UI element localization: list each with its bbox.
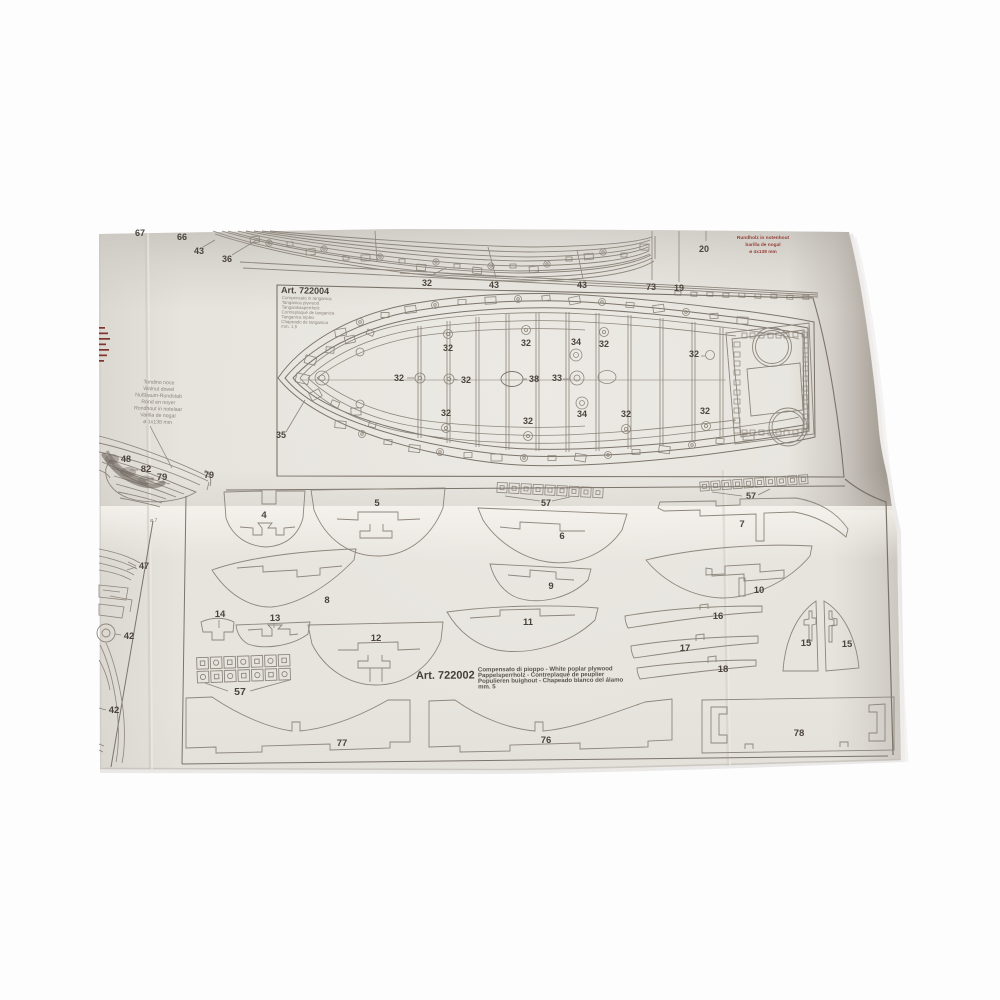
svg-text:32: 32 <box>521 338 531 348</box>
svg-text:mm. 5: mm. 5 <box>478 683 496 690</box>
svg-text:15: 15 <box>842 639 853 650</box>
svg-text:mm. 1,5: mm. 1,5 <box>281 324 298 329</box>
svg-text:32: 32 <box>443 343 453 353</box>
svg-text:16: 16 <box>713 611 724 622</box>
svg-text:42: 42 <box>109 705 120 716</box>
svg-text:Populieren buighout - Chapeado: Populieren buighout - Chapeado blanco de… <box>478 677 624 685</box>
svg-text:79: 79 <box>204 470 214 480</box>
svg-text:67: 67 <box>135 228 145 238</box>
svg-text:5: 5 <box>374 498 380 509</box>
svg-text:34: 34 <box>577 409 587 419</box>
svg-text:7: 7 <box>739 519 744 530</box>
svg-text:57: 57 <box>746 491 756 501</box>
svg-text:Rundholz in notenhout: Rundholz in notenhout <box>737 235 790 241</box>
svg-text:34: 34 <box>571 337 581 347</box>
svg-text:47: 47 <box>139 561 149 571</box>
svg-text:9: 9 <box>548 581 553 592</box>
svg-text:36: 36 <box>222 254 232 264</box>
svg-text:66: 66 <box>177 232 187 242</box>
svg-text:38: 38 <box>529 374 539 384</box>
svg-text:11: 11 <box>523 617 534 628</box>
svg-text:8: 8 <box>324 595 329 606</box>
svg-text:35: 35 <box>276 430 286 440</box>
svg-text:82: 82 <box>141 464 152 475</box>
svg-text:ø 7: ø 7 <box>150 518 157 524</box>
svg-text:19: 19 <box>674 283 684 293</box>
svg-text:17: 17 <box>680 643 691 654</box>
svg-text:ø 4x138 mm: ø 4x138 mm <box>749 249 776 255</box>
svg-text:15: 15 <box>801 638 812 649</box>
svg-text:33: 33 <box>552 373 562 383</box>
svg-text:32: 32 <box>700 406 710 416</box>
svg-text:14: 14 <box>215 609 226 620</box>
svg-text:32: 32 <box>461 375 471 385</box>
svg-text:76: 76 <box>541 735 552 746</box>
svg-text:77: 77 <box>337 738 348 749</box>
svg-text:32: 32 <box>689 349 699 359</box>
svg-text:32: 32 <box>523 416 533 426</box>
svg-text:57: 57 <box>541 498 551 508</box>
svg-text:6: 6 <box>559 531 564 542</box>
svg-text:20: 20 <box>699 244 709 254</box>
svg-text:48: 48 <box>121 454 131 464</box>
svg-text:32: 32 <box>422 278 432 288</box>
svg-text:42: 42 <box>124 631 135 642</box>
svg-text:73: 73 <box>646 282 656 292</box>
svg-text:12: 12 <box>371 633 382 644</box>
svg-text:78: 78 <box>794 728 805 739</box>
svg-text:18: 18 <box>718 664 729 675</box>
svg-text:13: 13 <box>270 613 281 624</box>
svg-text:32: 32 <box>441 408 451 418</box>
svg-text:Art. 722002: Art. 722002 <box>416 669 475 682</box>
svg-text:43: 43 <box>194 246 204 256</box>
svg-text:barilla de nogal: barilla de nogal <box>745 242 780 248</box>
svg-text:57: 57 <box>234 686 246 698</box>
svg-text:ø 1x138 mm: ø 1x138 mm <box>143 419 172 426</box>
svg-text:32: 32 <box>599 339 609 349</box>
svg-text:32: 32 <box>621 409 631 419</box>
svg-text:32: 32 <box>394 373 404 383</box>
svg-text:4: 4 <box>261 510 267 521</box>
svg-text:10: 10 <box>754 585 765 596</box>
svg-text:43: 43 <box>577 280 587 290</box>
svg-text:79: 79 <box>157 472 168 483</box>
svg-text:43: 43 <box>489 280 499 290</box>
